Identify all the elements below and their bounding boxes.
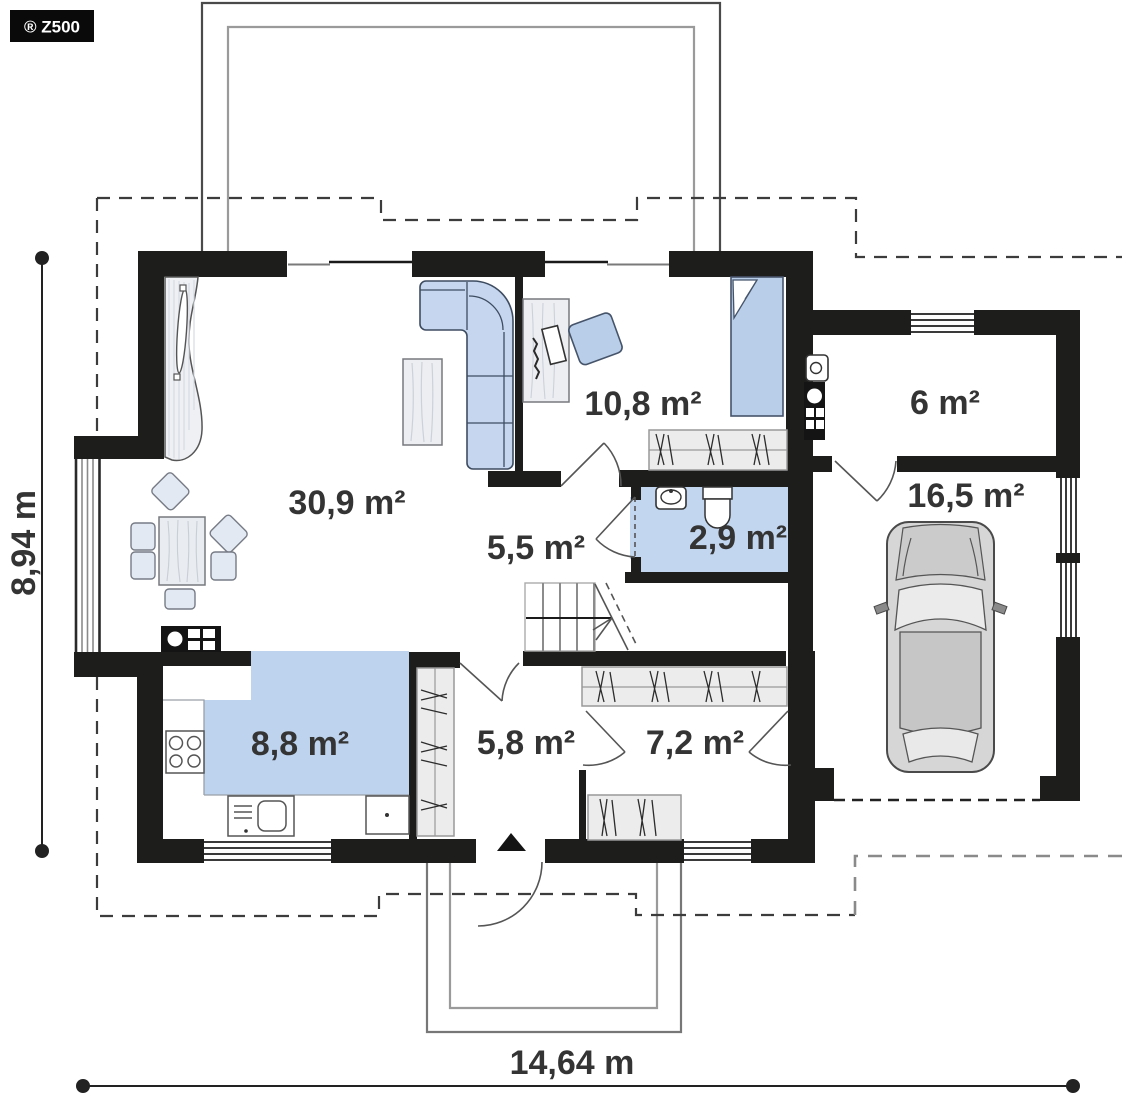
- svg-text:7,2 m²: 7,2 m²: [646, 724, 744, 762]
- svg-text:® Z500: ® Z500: [24, 18, 80, 37]
- svg-text:5,8 m²: 5,8 m²: [477, 724, 575, 762]
- svg-text:30,9 m²: 30,9 m²: [288, 484, 405, 522]
- svg-text:5,5 m²: 5,5 m²: [487, 529, 585, 567]
- svg-text:10,8 m²: 10,8 m²: [584, 385, 701, 423]
- svg-text:8,94 m: 8,94 m: [5, 490, 43, 596]
- svg-text:8,8 m²: 8,8 m²: [251, 725, 349, 763]
- svg-text:14,64 m: 14,64 m: [510, 1044, 635, 1082]
- svg-text:6 m²: 6 m²: [910, 384, 980, 422]
- svg-text:16,5 m²: 16,5 m²: [907, 477, 1024, 515]
- svg-text:2,9 m²: 2,9 m²: [689, 519, 787, 557]
